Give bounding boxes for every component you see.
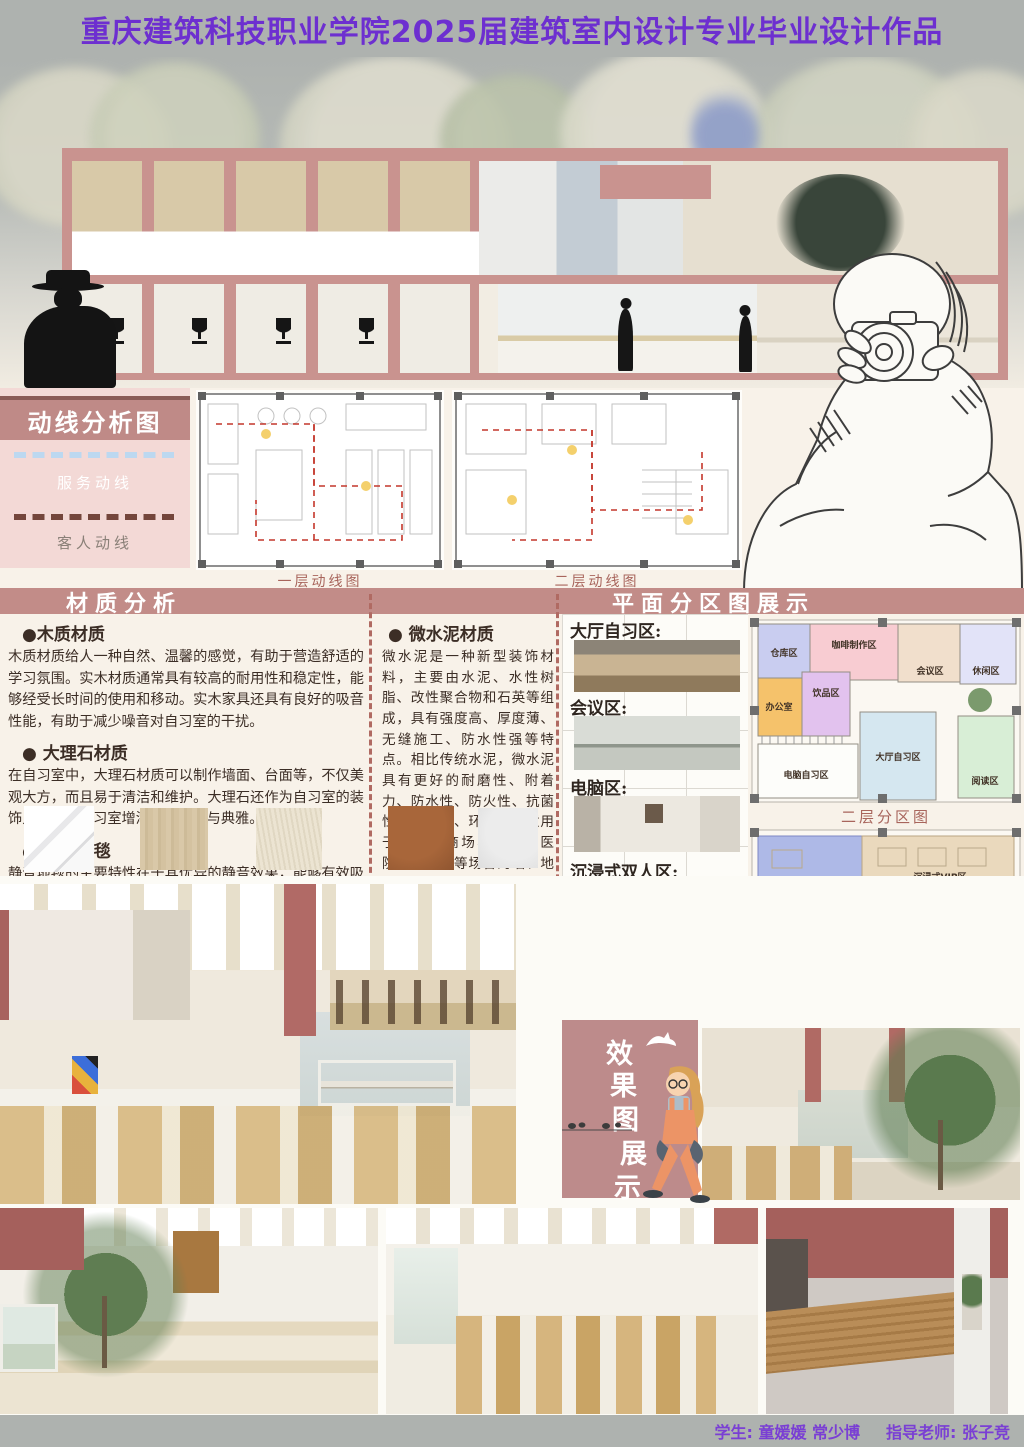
- material-item: ●木质材质 木质材质给人一种自然、温馨的感觉，有助于营造舒适的学习氛围。实木材质…: [8, 620, 364, 733]
- wall-art: [72, 1056, 98, 1094]
- swatch-micro-cement: [478, 808, 538, 868]
- window-landscape: [0, 1304, 58, 1372]
- zone-photo-computer: [574, 796, 740, 852]
- light-dot: [683, 515, 693, 525]
- man-silhouette: [18, 270, 143, 388]
- poster: 重庆建筑科技职业学院2025届建筑室内设计专业毕业设计作品: [0, 0, 1024, 1447]
- floor1-circulation-plan: [196, 390, 444, 570]
- photographer-illustration: [740, 246, 1024, 592]
- swatch-wood-veneer: [140, 808, 208, 870]
- material-name: ● 大理石材质: [22, 739, 364, 764]
- render-main-hall: [0, 884, 516, 1204]
- zone-photo-meeting: [574, 716, 740, 770]
- render-atrium: [702, 1028, 1020, 1200]
- wood-slat-counter: [766, 1292, 954, 1374]
- render-corridor: [766, 1208, 1008, 1414]
- plan-plant: [968, 688, 992, 712]
- circulation-title-bar: 动线分析图: [0, 396, 190, 440]
- poster-title: 重庆建筑科技职业学院2025届建筑室内设计专业毕业设计作品: [81, 7, 944, 51]
- floor2-circulation-plan: [452, 390, 742, 570]
- materials-header: 材质分析: [66, 586, 182, 618]
- zone-text: 阅读区: [971, 775, 998, 787]
- birds-on-wire-icon: [562, 1116, 632, 1138]
- zone-text: 大厅自习区: [875, 751, 920, 763]
- bar-stools: [336, 980, 506, 1024]
- zone-text: 饮品区: [811, 687, 839, 699]
- tree-trunk: [938, 1120, 943, 1190]
- photographer-body: [744, 254, 1022, 592]
- service-line-sample: [14, 452, 174, 458]
- zone-photo-hall: [574, 640, 740, 692]
- credits-advisor: 指导老师: 张子竞: [886, 1419, 1010, 1443]
- zone-text: 会议区: [916, 665, 943, 677]
- section-rose-block: [600, 165, 711, 199]
- swatch-ribbed-carpet: [256, 808, 322, 870]
- render-dining-room: [386, 1208, 758, 1414]
- office-chair: [276, 318, 291, 344]
- zone-label-hall: 大厅自习区:: [570, 617, 742, 642]
- floor1-zoning-plan: 仓库区 咖啡制作区 会议区 休闲区 办公室 饮品区 电脑自习区 大厅自习区 阅读…: [748, 616, 1024, 806]
- mezzanine-lounge: [0, 910, 190, 1020]
- wood-desks: [702, 1146, 852, 1200]
- niche-plant: [962, 1274, 982, 1330]
- tree-trunk: [102, 1296, 107, 1368]
- section-header-bar: 材质分析 平面分区图展示: [0, 588, 1024, 614]
- guest-line-sample: [14, 514, 174, 520]
- wood-tables: [0, 1106, 516, 1204]
- white-bird-icon: [644, 1030, 678, 1050]
- title-bar: 重庆建筑科技职业学院2025届建筑室内设计专业毕业设计作品: [0, 0, 1024, 57]
- material-name: ●木质材质: [22, 620, 364, 645]
- credits-students: 学生: 童媛媛 常少博: [714, 1419, 860, 1443]
- wood-chairs: [456, 1316, 716, 1414]
- guest-line-label: 客人动线: [0, 532, 190, 553]
- light-dot: [361, 481, 371, 491]
- zone-text: 咖啡制作区: [831, 639, 876, 651]
- zone-text: 仓库区: [769, 647, 797, 659]
- material-desc: 木质材质给人一种自然、温馨的感觉，有助于营造舒适的学习氛围。实木材质通常具有较高…: [8, 647, 364, 733]
- light-dot: [507, 495, 517, 505]
- section-upper-bays: [72, 161, 479, 275]
- light-dot: [261, 429, 271, 439]
- divider-dashed: [369, 594, 372, 882]
- swatch-leather-brown: [388, 806, 454, 870]
- zone-text: 办公室: [765, 701, 792, 713]
- credits-bar: 学生: 童媛媛 常少博 指导老师: 张子竞: [0, 1415, 1024, 1447]
- office-chair: [192, 318, 207, 344]
- zone-text: 电脑自习区: [783, 769, 828, 781]
- floor2-zoning-caption: 二层分区图: [748, 806, 1024, 827]
- light-dot: [567, 445, 577, 455]
- circulation-title: 动线分析图: [28, 403, 163, 438]
- service-line-label: 服务动线: [0, 472, 190, 493]
- fx-char: 示: [614, 1166, 641, 1205]
- office-chair: [359, 318, 374, 344]
- material-name: ● 微水泥材质: [388, 620, 554, 645]
- girl-illustration: [640, 1062, 720, 1212]
- dining-table-glass-room: [318, 1060, 456, 1106]
- swatch-marble: [24, 806, 94, 872]
- zone-text: 休闲区: [971, 665, 999, 677]
- body: [24, 306, 116, 388]
- person-silhouette: [618, 309, 633, 371]
- render-steps-room: [0, 1208, 378, 1414]
